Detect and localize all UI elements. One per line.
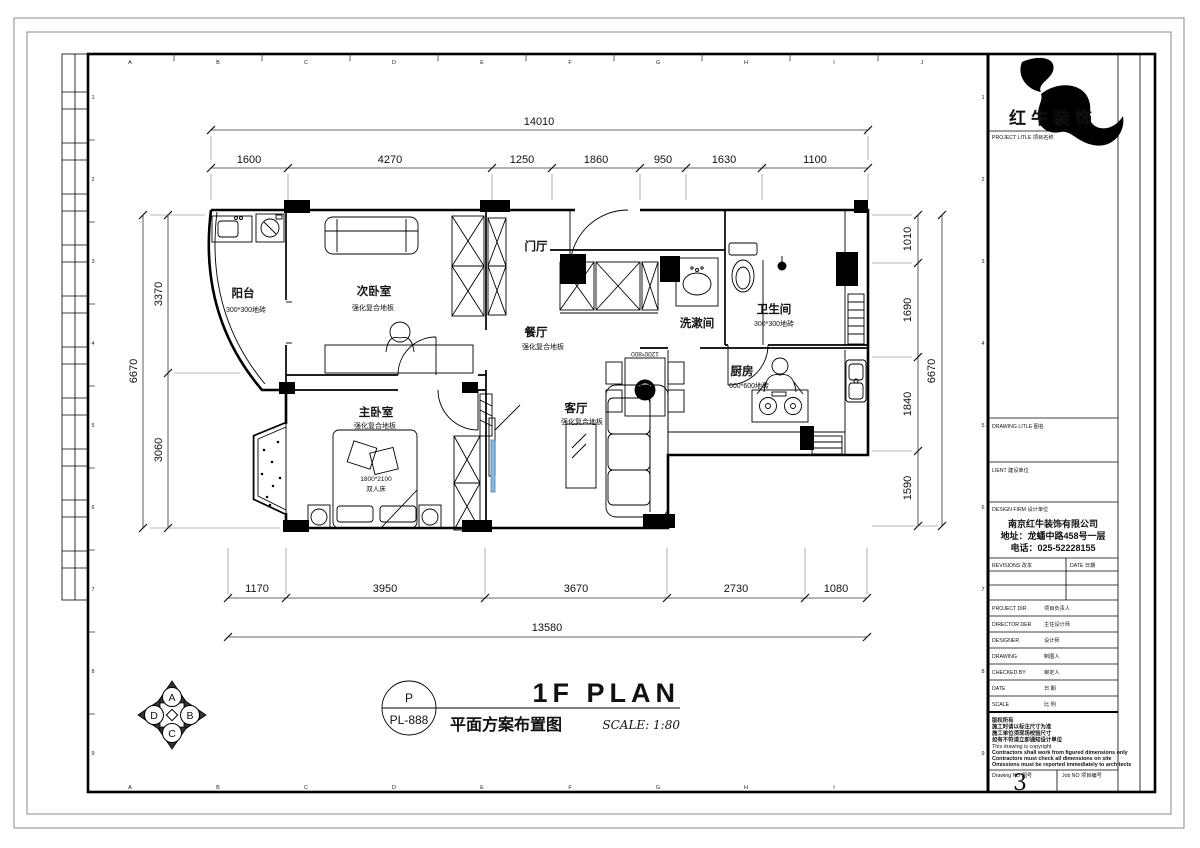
svg-text:4270: 4270 — [378, 154, 402, 166]
svg-text:C: C — [304, 785, 308, 791]
svg-text:I: I — [833, 785, 835, 791]
compass: A B C D — [138, 681, 206, 749]
plan-scale: SCALE: 1:80 — [602, 718, 680, 732]
svg-text:3: 3 — [91, 259, 94, 265]
svg-text:3060: 3060 — [153, 438, 165, 462]
svg-text:950: 950 — [654, 154, 672, 166]
wardrobe-bedroom2 — [452, 216, 506, 316]
svg-text:B: B — [216, 785, 220, 791]
svg-text:F: F — [568, 60, 572, 66]
firm-name: 南京红牛装饰有限公司 — [1008, 518, 1098, 529]
svg-text:600*600地砖: 600*600地砖 — [729, 381, 769, 390]
dim-top-segments: 1600 4270 1250 1860 950 1630 1100 — [207, 154, 872, 200]
svg-text:主卧室: 主卧室 — [359, 405, 394, 419]
client-label: LIENT 建设单位 — [992, 466, 1029, 474]
compass-n: A — [168, 692, 175, 704]
kitchen-window — [812, 436, 842, 454]
plan-title-zh: 平面方案布置图 — [450, 715, 562, 734]
dim-bottom-total: 13580 — [224, 622, 871, 641]
svg-text:D: D — [392, 785, 396, 791]
svg-text:卫生间: 卫生间 — [757, 302, 792, 316]
svg-text:J: J — [921, 60, 924, 66]
svg-text:厨房: 厨房 — [731, 364, 754, 378]
svg-text:6: 6 — [91, 505, 94, 511]
svg-text:2: 2 — [981, 177, 984, 183]
signature-rows: PROJECT DIR项目负责人 DIRECTOR DER主任设计师 DESIG… — [988, 604, 1118, 712]
floor-plan: 阳台 300*300地砖 次卧室 强化复合地板 门厅 餐厅 强化复合地板 洗漱间… — [128, 116, 946, 641]
svg-text:8: 8 — [981, 669, 984, 675]
svg-text:3670: 3670 — [564, 583, 588, 595]
svg-text:DRAWING: DRAWING — [992, 654, 1017, 660]
svg-text:1250: 1250 — [510, 154, 534, 166]
svg-text:洗漱间: 洗漱间 — [680, 316, 715, 330]
bedroom2-door — [398, 337, 436, 375]
compass-s: C — [168, 728, 176, 740]
svg-text:8: 8 — [91, 669, 94, 675]
kitchen — [668, 358, 866, 454]
svg-text:比 例: 比 例 — [1044, 700, 1056, 708]
exterior-walls — [209, 210, 868, 528]
grid-numbers-right: 1 2 3 4 5 6 7 8 9 — [981, 95, 984, 757]
svg-text:7: 7 — [981, 587, 984, 593]
title-block: 红牛装饰 PROJECT LITLE 项目名称 DRAWING LITLE 图名… — [988, 54, 1131, 796]
svg-text:5: 5 — [91, 423, 94, 429]
svg-text:DATE: DATE — [992, 686, 1006, 692]
job-no-label: Job NO 项目编号 — [1062, 771, 1102, 779]
svg-text:300*300地砖: 300*300地砖 — [754, 319, 794, 328]
dim-bottom-segments: 1170 3950 3670 2730 1080 — [224, 548, 871, 602]
svg-text:1010: 1010 — [902, 227, 914, 251]
plan-title-en: 1F PLAN — [532, 678, 680, 708]
svg-text:9: 9 — [91, 751, 94, 757]
drawing-number: 3 — [1013, 771, 1027, 796]
svg-text:审定人: 审定人 — [1044, 668, 1060, 676]
svg-text:2730: 2730 — [724, 583, 748, 595]
master-door — [438, 390, 478, 430]
svg-text:强化复合地板: 强化复合地板 — [561, 417, 603, 426]
bedroom2-furniture — [325, 216, 506, 373]
svg-text:1590: 1590 — [902, 476, 914, 500]
svg-text:3370: 3370 — [153, 282, 165, 306]
svg-text:4: 4 — [981, 341, 984, 347]
svg-text:1630: 1630 — [712, 154, 736, 166]
svg-text:Omissions must be reported imm: Omissions must be reported immediately t… — [992, 762, 1131, 768]
firm-address: 地址：龙蟠中路458号一层 — [1000, 530, 1105, 541]
svg-text:1860: 1860 — [584, 154, 608, 166]
grid-numbers-left: 1 2 3 4 5 6 7 8 9 — [89, 95, 95, 757]
svg-text:1: 1 — [981, 95, 984, 101]
sofa — [606, 385, 668, 517]
copyright-notes: 版权所有 施工时请以标注尺寸为准 施工单位须现场校验尺寸 如有不符请立即通知设计… — [991, 716, 1131, 768]
svg-text:1690: 1690 — [902, 298, 914, 322]
brand-logo — [1020, 58, 1123, 146]
nightstand-right — [419, 505, 441, 528]
project-title-label: PROJECT LITLE 项目名称 — [992, 133, 1054, 141]
compass-e: B — [186, 710, 193, 722]
svg-text:门厅: 门厅 — [525, 239, 548, 253]
drawing-title-label: DRAWING LITLE 图名 — [992, 422, 1044, 430]
stove — [752, 390, 808, 422]
svg-text:1200*800: 1200*800 — [631, 350, 659, 357]
nightstand-left — [308, 505, 330, 528]
svg-text:7: 7 — [91, 587, 94, 593]
firm-phone: 电话：025-52228155 — [1010, 542, 1095, 553]
svg-text:E: E — [480, 785, 484, 791]
svg-text:H: H — [744, 60, 748, 66]
plan-number: PL-888 — [390, 713, 429, 727]
washing-machine — [256, 214, 284, 242]
dim-top-total: 14010 — [207, 116, 872, 160]
svg-text:G: G — [656, 785, 660, 791]
svg-text:次卧室: 次卧室 — [357, 284, 392, 298]
svg-text:客厅: 客厅 — [564, 401, 588, 415]
svg-text:强化复合地板: 强化复合地板 — [522, 342, 564, 351]
floor-plan-sheet: A B C D E F G H I J A B C D E F G — [0, 0, 1200, 848]
svg-text:A: A — [128, 60, 132, 66]
svg-text:PROJECT DIR: PROJECT DIR — [992, 606, 1027, 612]
revisions-date-label: DATE 日期 — [1070, 562, 1095, 569]
svg-text:1080: 1080 — [824, 583, 848, 595]
brand-name: 红牛装饰 — [1009, 108, 1097, 128]
svg-text:主任设计师: 主任设计师 — [1044, 620, 1070, 628]
bay-window — [254, 423, 286, 514]
mirror — [491, 440, 495, 492]
svg-text:6670: 6670 — [926, 359, 938, 383]
svg-text:1800*2100: 1800*2100 — [360, 476, 392, 483]
svg-text:3: 3 — [981, 259, 984, 265]
svg-text:DIRECTOR DER: DIRECTOR DER — [992, 622, 1032, 628]
balcony — [212, 214, 284, 242]
svg-text:1100: 1100 — [803, 154, 827, 166]
svg-text:CHECKED BY: CHECKED BY — [992, 670, 1026, 676]
dining-table — [606, 358, 684, 416]
svg-text:餐厅: 餐厅 — [524, 325, 548, 339]
duct — [848, 294, 864, 344]
svg-text:F: F — [568, 785, 572, 791]
svg-text:施工时请以标注尺寸为准: 施工时请以标注尺寸为准 — [992, 723, 1052, 731]
svg-text:施工单位须现场校验尺寸: 施工单位须现场校验尺寸 — [992, 729, 1052, 737]
svg-text:阳台: 阳台 — [232, 286, 255, 300]
svg-text:G: G — [656, 60, 660, 66]
svg-text:4: 4 — [91, 341, 94, 347]
svg-text:强化复合地板: 强化复合地板 — [354, 421, 396, 430]
grid-letters-bottom: A B C D E F G H I — [128, 785, 835, 791]
svg-text:1: 1 — [91, 95, 94, 101]
svg-text:14010: 14010 — [524, 116, 555, 128]
svg-text:制图人: 制图人 — [1044, 652, 1060, 660]
svg-text:D: D — [392, 60, 396, 66]
svg-text:I: I — [833, 60, 835, 66]
svg-text:C: C — [304, 60, 308, 66]
grid-letters-top: A B C D E F G H I J — [128, 55, 923, 66]
svg-text:1840: 1840 — [902, 392, 914, 416]
svg-text:9: 9 — [981, 751, 984, 757]
svg-text:双人床: 双人床 — [366, 484, 386, 493]
svg-text:强化复合地板: 强化复合地板 — [352, 303, 394, 312]
drawing-title-group: P PL-888 1F PLAN 平面方案布置图 SCALE: 1:80 — [382, 678, 680, 735]
svg-text:3950: 3950 — [373, 583, 397, 595]
dim-right: 1010 1690 1840 1590 6670 — [872, 211, 946, 530]
svg-text:6: 6 — [981, 505, 984, 511]
wash-basin — [676, 258, 718, 306]
toilet — [729, 243, 757, 292]
svg-text:A: A — [128, 785, 132, 791]
bathroom-door — [728, 345, 768, 385]
dimensions: 14010 1600 4270 1250 — [128, 116, 946, 641]
svg-text:项目负责人: 项目负责人 — [1044, 604, 1070, 612]
svg-text:300*300地砖: 300*300地砖 — [226, 305, 266, 314]
revisions-label: REVISIONS 改本 — [992, 561, 1032, 569]
shower-head — [778, 256, 786, 270]
design-firm-label: DESIGN FIRM 设计单位 — [992, 505, 1048, 513]
svg-text:日 期: 日 期 — [1044, 685, 1056, 692]
svg-text:1600: 1600 — [237, 154, 261, 166]
svg-text:版权所有: 版权所有 — [991, 716, 1014, 724]
svg-text:H: H — [744, 785, 748, 791]
svg-text:5: 5 — [981, 423, 984, 429]
svg-text:1170: 1170 — [245, 583, 269, 595]
compass-w: D — [150, 710, 158, 722]
svg-text:13580: 13580 — [532, 622, 563, 634]
plan-tag: P — [405, 691, 413, 705]
svg-text:E: E — [480, 60, 484, 66]
svg-text:6670: 6670 — [128, 359, 140, 383]
svg-text:B: B — [216, 60, 220, 66]
binding-strip — [62, 54, 88, 600]
svg-text:DESIGNER: DESIGNER — [992, 638, 1019, 644]
svg-text:如有不符请立即通知设计单位: 如有不符请立即通知设计单位 — [992, 736, 1063, 744]
svg-text:SCALE: SCALE — [992, 702, 1010, 708]
svg-text:设计师: 设计师 — [1044, 636, 1060, 644]
svg-text:2: 2 — [91, 177, 94, 183]
kitchen-sink — [846, 360, 866, 402]
rug-mirror — [566, 424, 596, 488]
